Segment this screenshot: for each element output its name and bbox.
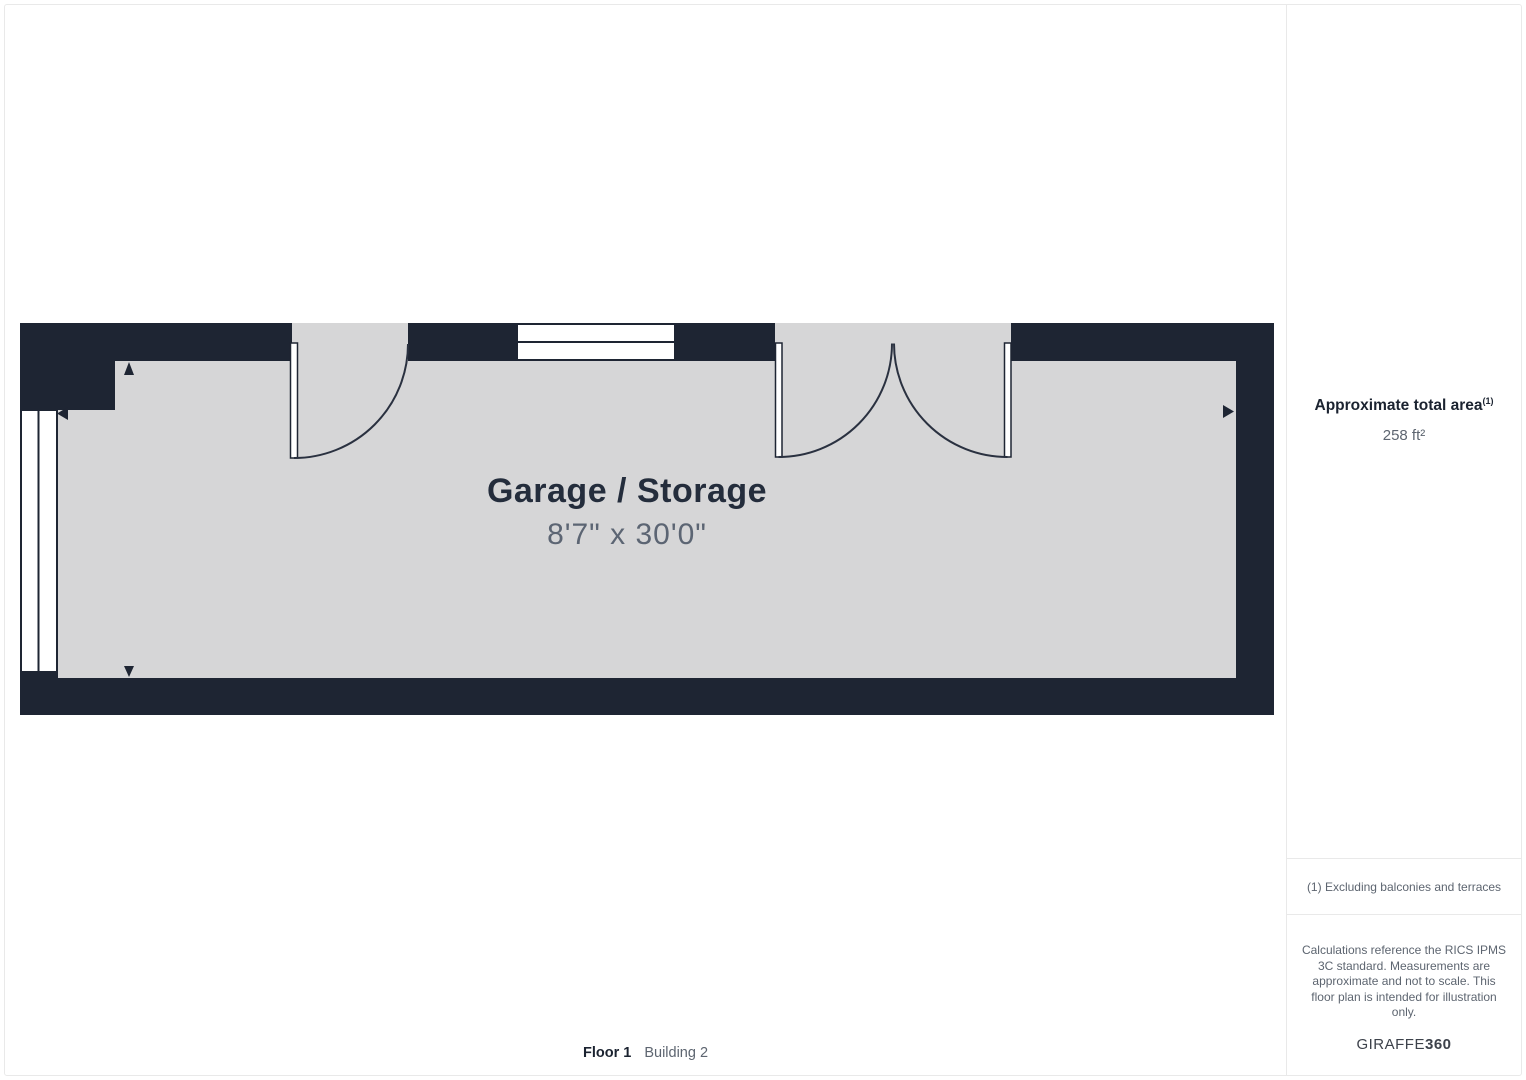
plan-footer: Floor 1Building 2 bbox=[5, 1045, 1286, 1061]
info-sidebar: Approximate total area(1) 258 ft² (1) Ex… bbox=[1287, 4, 1521, 1075]
room-name-label: Garage / Storage bbox=[20, 472, 1234, 511]
door-opening-double bbox=[775, 323, 1011, 361]
room-dimensions-label: 8'7" x 30'0" bbox=[20, 518, 1234, 552]
building-label: Building 2 bbox=[644, 1045, 708, 1061]
disclaimer-section: Calculations reference the RICS IPMS 3C … bbox=[1287, 914, 1521, 1075]
floorplan-page: Garage / Storage 8'7" x 30'0" Floor 1Bui… bbox=[0, 0, 1526, 1080]
double-door-right-leaf bbox=[1005, 343, 1012, 457]
floor-label: Floor 1 bbox=[583, 1045, 631, 1061]
disclaimer-text: Calculations reference the RICS IPMS 3C … bbox=[1291, 943, 1517, 1021]
giraffe360-logo: GIRAFFE360 bbox=[1287, 1036, 1521, 1053]
brand-name: GIRAFFE bbox=[1356, 1036, 1425, 1053]
total-area-title: Approximate total area(1) bbox=[1287, 396, 1521, 415]
footnote-marker: (1) bbox=[1482, 396, 1493, 406]
total-area-value: 258 ft² bbox=[1287, 427, 1521, 444]
door-opening-single bbox=[292, 323, 408, 361]
double-door-left-leaf bbox=[776, 343, 783, 457]
brand-suffix: 360 bbox=[1425, 1036, 1452, 1053]
total-area-block: Approximate total area(1) 258 ft² bbox=[1287, 396, 1521, 444]
single-door-leaf bbox=[291, 343, 298, 458]
footnote-section: (1) Excluding balconies and terraces bbox=[1287, 858, 1521, 915]
footnote-text: (1) Excluding balconies and terraces bbox=[1307, 880, 1501, 894]
